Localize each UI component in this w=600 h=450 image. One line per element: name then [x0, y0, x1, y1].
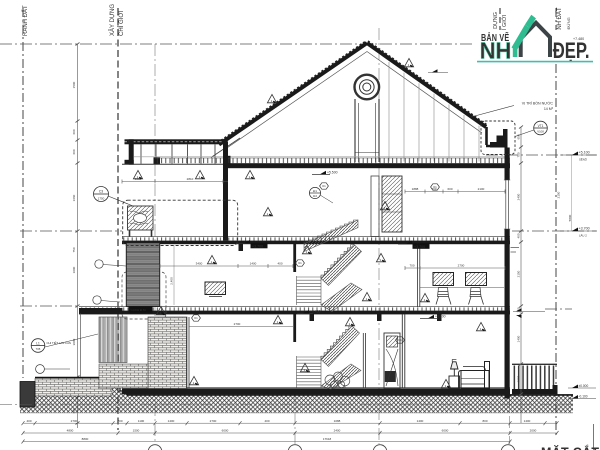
svg-text:NH: NH: [480, 38, 512, 64]
svg-text:L1: L1: [36, 341, 40, 345]
svg-text:700: 700: [409, 264, 414, 268]
svg-text:SÊNÔ: SÊNÔ: [579, 156, 588, 161]
svg-text:D1: D1: [433, 185, 437, 189]
svg-text:VT1: VT1: [538, 124, 544, 128]
svg-text:110: 110: [313, 194, 318, 198]
svg-text:400: 400: [277, 262, 282, 266]
svg-text:1500: 1500: [133, 429, 140, 433]
svg-text:8800: 8800: [82, 437, 89, 441]
svg-text:705: 705: [36, 347, 41, 351]
svg-text:LẦU 2: LẦU 2: [579, 233, 587, 237]
svg-text:17618: 17618: [323, 437, 332, 441]
svg-text:2150: 2150: [517, 270, 521, 277]
svg-text:+3.700: +3.700: [252, 244, 263, 248]
svg-text:1000: 1000: [517, 375, 521, 382]
svg-text:1888: 1888: [412, 187, 419, 191]
svg-text:2,400: 2,400: [170, 277, 174, 285]
svg-text:+5.500: +5.500: [327, 170, 338, 174]
svg-text:650: 650: [517, 134, 521, 139]
svg-text:2810: 2810: [187, 177, 194, 181]
svg-text:CHỈ GIỚI: CHỈ GIỚI: [118, 11, 125, 36]
svg-text:14 M³: 14 M³: [544, 107, 554, 111]
svg-text:750: 750: [72, 247, 76, 252]
svg-text:1088: 1088: [334, 419, 341, 423]
svg-text:-0.100: -0.100: [579, 394, 588, 398]
svg-text:700: 700: [117, 419, 122, 423]
svg-text:±0.000: ±0.000: [579, 384, 589, 388]
svg-text:2700: 2700: [71, 419, 78, 423]
svg-text:C3: C3: [99, 190, 103, 194]
svg-text:V108: V108: [537, 130, 544, 134]
svg-text:1000: 1000: [72, 266, 76, 273]
svg-text:400: 400: [517, 233, 521, 238]
svg-text:6000: 6000: [442, 429, 449, 433]
svg-text:1660: 1660: [72, 194, 76, 201]
svg-text:1400: 1400: [417, 419, 424, 423]
svg-text:2400: 2400: [334, 429, 341, 433]
svg-text:1100: 1100: [138, 419, 145, 423]
svg-text:Đ1: Đ1: [313, 189, 317, 193]
svg-text:600: 600: [72, 129, 76, 134]
svg-text:D1: D1: [398, 338, 402, 342]
svg-text:2150: 2150: [557, 191, 561, 198]
svg-text:VỊ TRÍ BỒN NƯỚC: VỊ TRÍ BỒN NƯỚC: [522, 101, 554, 106]
svg-text:4800: 4800: [67, 429, 74, 433]
svg-text:3400: 3400: [196, 262, 203, 266]
svg-text:800: 800: [482, 419, 487, 423]
svg-text:400: 400: [26, 419, 31, 423]
svg-text:1500: 1500: [72, 81, 76, 88]
svg-text:1400: 1400: [250, 262, 257, 266]
svg-text:+0.300: +0.300: [435, 314, 446, 318]
svg-text:6000: 6000: [222, 429, 229, 433]
svg-text:750: 750: [517, 152, 521, 157]
svg-text:1400: 1400: [517, 335, 521, 342]
svg-text:2700: 2700: [234, 322, 241, 326]
svg-text:400: 400: [264, 419, 269, 423]
svg-text:D1: D1: [298, 261, 302, 265]
svg-text:+3.700: +3.700: [414, 245, 425, 249]
svg-text:1400: 1400: [168, 419, 175, 423]
svg-text:CHI TIẾT LAN CAN: CHI TIẾT LAN CAN: [47, 340, 71, 345]
svg-text:+0.450: +0.450: [310, 310, 321, 314]
svg-text:2100: 2100: [478, 187, 485, 191]
svg-text:1400: 1400: [524, 419, 531, 423]
svg-text:600: 600: [72, 149, 76, 154]
svg-text:XÂY DỰNG: XÂY DỰNG: [109, 4, 116, 36]
svg-text:2000: 2000: [530, 429, 537, 433]
svg-text:RANH ĐẤT: RANH ĐẤT: [22, 5, 29, 36]
svg-text:1750: 1750: [98, 196, 105, 200]
svg-text:2700: 2700: [210, 419, 217, 423]
svg-text:+5.100: +5.100: [579, 151, 590, 155]
svg-text:2400: 2400: [517, 193, 521, 200]
svg-text:2700: 2700: [458, 264, 465, 268]
svg-text:+3.700: +3.700: [579, 227, 590, 231]
svg-text:D1: D1: [194, 316, 198, 320]
svg-text:D1: D1: [322, 184, 326, 188]
svg-text:ĐẸP.: ĐẸP.: [553, 39, 590, 64]
svg-text:GẠCH Đ.M: GẠCH Đ.M: [131, 308, 147, 312]
svg-text:MẶT CẮT A-A: MẶT CẮT A-A: [541, 445, 600, 450]
svg-text:+7.480: +7.480: [573, 37, 584, 41]
svg-text:600: 600: [447, 187, 452, 191]
